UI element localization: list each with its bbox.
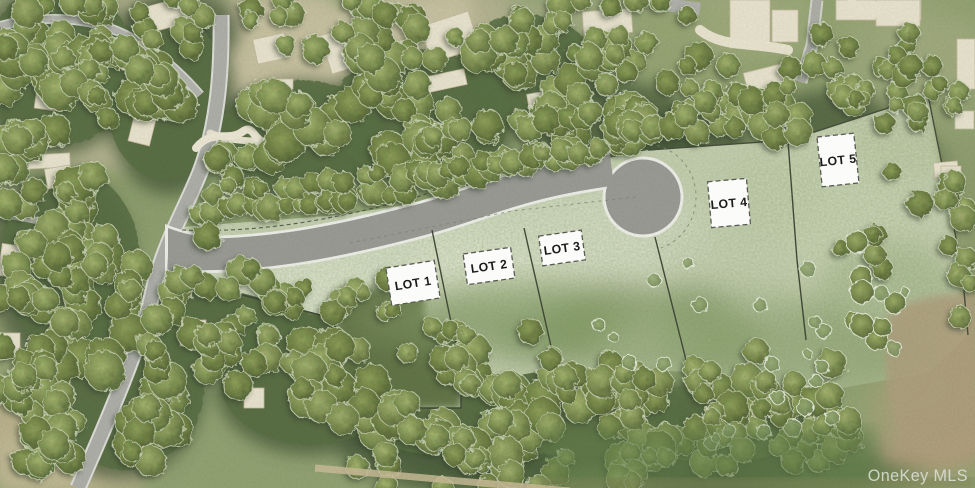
svg-text:OneKey MLS: OneKey MLS bbox=[868, 467, 968, 485]
